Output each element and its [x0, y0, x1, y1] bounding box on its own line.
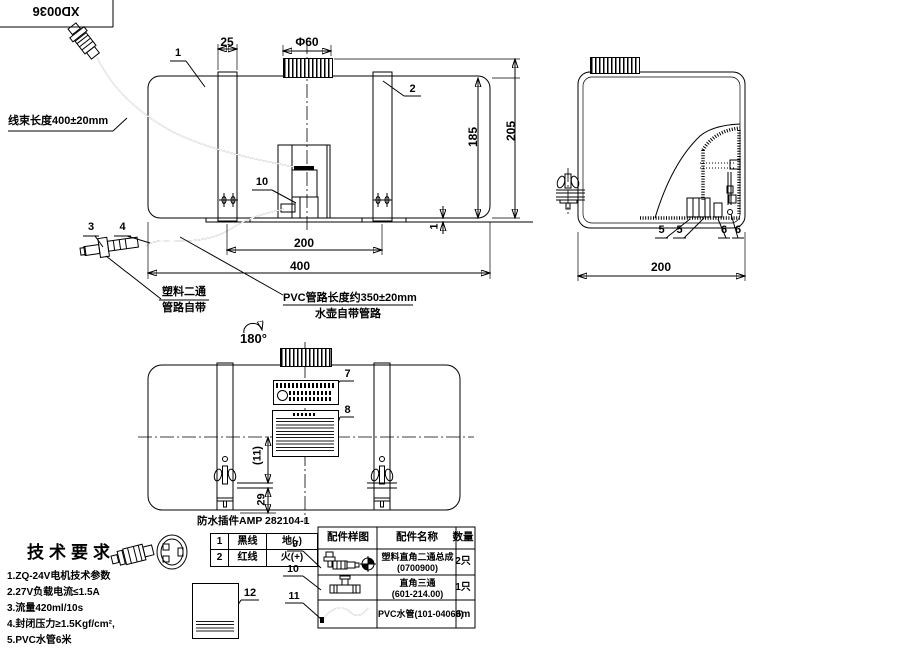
parts-header-name: 配件名称: [379, 532, 455, 543]
balloon-7: 7: [340, 369, 355, 380]
front-view: [8, 20, 533, 305]
dim-200-front: 200: [291, 237, 317, 249]
side-cap: [590, 57, 640, 74]
tech-req-item-2: 2.27V负载电流≤1.5A: [7, 588, 100, 598]
amp-connector-title: 防水插件AMP 282104-1: [197, 516, 309, 527]
dim-25: 25: [217, 36, 237, 48]
balloon-8: 8: [340, 405, 355, 416]
pin1-no: 1: [211, 534, 229, 550]
balloon-10-front: 10: [252, 177, 272, 188]
pvc-note-line1: PVC管路长度约350±20mm: [283, 293, 413, 304]
dim-11-rear: (11): [253, 441, 264, 471]
tech-req-item-3: 3.流量420ml/10s: [7, 604, 83, 614]
nameplate-label-7: [273, 380, 339, 405]
dim-205: 205: [505, 114, 517, 148]
pvc-note-line2: 水壶自带管路: [283, 309, 413, 320]
front-cap: [283, 58, 333, 78]
connector-detail-sketch: [110, 535, 187, 569]
dim-185: 185: [467, 120, 479, 154]
dim-29-rear: 29: [257, 487, 268, 513]
part-row1-code: (0700900): [379, 564, 456, 573]
tech-req-item-5: 5.PVC水管6米: [7, 636, 71, 646]
front-balloon-leaders: [8, 61, 421, 305]
pump-pocket: [278, 145, 330, 218]
rear-cap: [280, 348, 332, 367]
balloon-1: 1: [170, 48, 186, 59]
engineering-drawing-sheet: XD0036 线束长度400±20mm Φ60 25 1 2 10 3 4 20…: [0, 0, 900, 660]
tech-requirements-heading: 技术要求: [27, 544, 115, 561]
part-row2-qty: 1只: [450, 583, 476, 593]
balloon-2: 2: [404, 84, 421, 95]
balloon-3: 3: [83, 222, 99, 233]
tech-req-item-1: 1.ZQ-24V电机技术参数: [7, 572, 110, 582]
part-row1-qty: 2只: [450, 557, 476, 567]
part-row2-name: 直角三通: [379, 579, 456, 588]
side-balloon-leaders: [655, 214, 744, 238]
plastic-fitting-note-line2: 管路自带: [160, 303, 208, 314]
balloon-11-table: 11: [285, 591, 303, 602]
balloon-10-table: 10: [283, 564, 303, 575]
side-view: [556, 72, 745, 281]
parts-header-sample: 配件样图: [320, 532, 376, 543]
elbow-fitting-sketch: [324, 552, 376, 572]
pvc-tube-sketch: [320, 608, 368, 623]
dim-200-side: 200: [648, 261, 674, 273]
dim-1-front: 1: [430, 221, 441, 233]
plastic-fitting-note-line1: 塑料二通: [160, 287, 208, 298]
pin2-no: 2: [211, 550, 229, 566]
part-row1-name: 塑料直角二通总成: [379, 553, 456, 562]
side-wing-bolt: [556, 168, 585, 214]
pin1-wire: 黑线: [229, 534, 267, 550]
dim-phi60: Φ60: [290, 36, 324, 48]
balloon-5a: 5: [655, 225, 668, 236]
balloon-6b: 6: [732, 225, 744, 236]
balloon-6a: 6: [718, 225, 730, 236]
strap-anchor-marks: [219, 193, 392, 207]
part-row2-code: (601-214.00): [379, 590, 456, 599]
datum-target-symbol: [360, 556, 376, 572]
balloon-4: 4: [114, 222, 131, 233]
part-row3-qty: 6m: [450, 610, 476, 620]
wire-length-note: 线束长度400±20mm: [8, 116, 108, 127]
rotation-label: 180°: [240, 332, 267, 345]
tee-fitting-sketch: [330, 576, 360, 593]
small-label-12: [192, 583, 239, 639]
dim-400-front: 400: [287, 260, 313, 272]
tech-req-item-4: 4.封闭压力≥1.5Kgf/cm²,: [7, 620, 115, 630]
side-internal-assembly: [640, 124, 740, 218]
balloon-5b: 5: [673, 225, 686, 236]
drawing-number: XD0036: [14, 5, 98, 18]
balloon-9: 9: [287, 539, 303, 550]
balloon-12: 12: [241, 588, 259, 599]
front-dimensions: [148, 44, 520, 279]
parts-header-qty: 数量: [450, 532, 476, 543]
pin2-wire: 红线: [229, 550, 267, 566]
part-row3-name: PVC水管(101-04068): [378, 610, 457, 619]
warning-label-8: [272, 410, 339, 457]
nameplate-logo: [277, 390, 288, 401]
outlet-tube: [146, 209, 284, 246]
